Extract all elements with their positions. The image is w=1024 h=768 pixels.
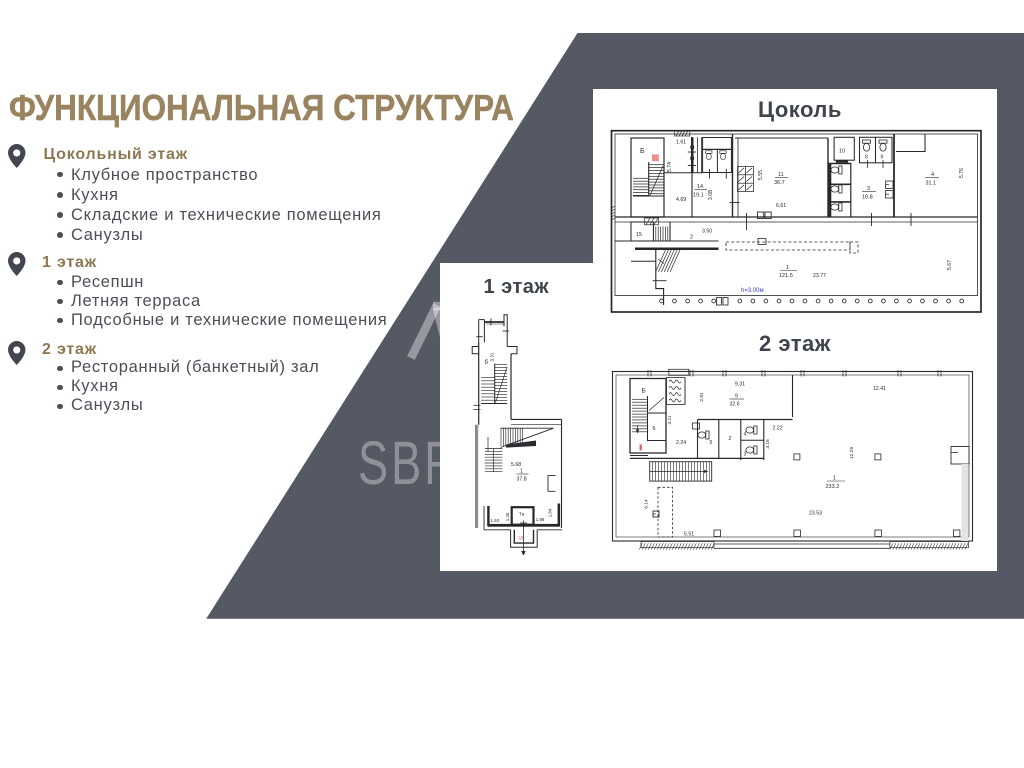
svg-text:1: 1 [786, 265, 789, 271]
svg-text:9: 9 [881, 155, 884, 161]
svg-text:19.1: 19.1 [693, 193, 704, 199]
svg-text:1.36: 1.36 [505, 512, 510, 521]
svg-text:1.84: 1.84 [548, 508, 553, 517]
svg-text:3.50: 3.50 [702, 229, 712, 235]
svg-text:6.14: 6.14 [644, 499, 650, 509]
svg-text:31.1: 31.1 [926, 181, 937, 187]
svg-text:1.93: 1.93 [491, 518, 500, 523]
svg-text:5.55: 5.55 [758, 170, 764, 180]
svg-text:15: 15 [636, 232, 642, 238]
svg-text:2: 2 [729, 436, 732, 442]
svg-text:4.69: 4.69 [676, 197, 686, 203]
svg-text:Та: Та [519, 512, 525, 518]
svg-text:12.29: 12.29 [849, 447, 855, 459]
svg-text:36.7: 36.7 [774, 180, 785, 186]
svg-text:5: 5 [710, 440, 713, 446]
svg-text:5.76: 5.76 [959, 168, 965, 178]
svg-text:3.16: 3.16 [765, 439, 771, 449]
svg-text:3.11: 3.11 [667, 415, 673, 424]
svg-text:1: 1 [520, 469, 523, 475]
svg-text:2.22: 2.22 [773, 426, 783, 432]
svg-text:2.24: 2.24 [676, 440, 686, 446]
svg-text:2.81: 2.81 [699, 392, 705, 402]
svg-text:3: 3 [867, 186, 870, 192]
svg-text:23.77: 23.77 [813, 273, 826, 279]
svg-text:4: 4 [744, 432, 747, 438]
svg-text:5.68: 5.68 [511, 462, 521, 468]
svg-text:3.08: 3.08 [708, 190, 714, 200]
svg-text:8: 8 [865, 155, 868, 161]
svg-text:37.8: 37.8 [517, 477, 527, 483]
svg-text:3: 3 [744, 452, 747, 458]
svg-text:9: 9 [735, 394, 738, 400]
svg-text:5.51: 5.51 [684, 532, 694, 538]
svg-text:10.8: 10.8 [862, 195, 873, 201]
svg-text:2: 2 [690, 235, 693, 241]
svg-text:6.61: 6.61 [776, 203, 786, 209]
svg-text:3.31: 3.31 [490, 352, 495, 361]
svg-text:4: 4 [931, 172, 934, 178]
svg-text:14: 14 [697, 184, 703, 190]
svg-text:Б: Б [642, 388, 646, 395]
svg-text:121.5: 121.5 [779, 273, 793, 279]
svg-text:10: 10 [839, 149, 845, 155]
svg-text:Б: Б [640, 148, 645, 155]
svg-text:32.6: 32.6 [730, 402, 740, 408]
svg-text:5.67: 5.67 [947, 260, 953, 270]
svg-text:11: 11 [778, 172, 784, 178]
svg-text:1.61: 1.61 [676, 140, 686, 146]
svg-text:б: б [485, 360, 489, 366]
svg-text:5.74: 5.74 [667, 162, 673, 172]
svg-text:233.2: 233.2 [826, 484, 840, 490]
svg-text:6: 6 [653, 426, 656, 432]
svg-text:h=3.00м: h=3.00м [741, 288, 764, 294]
svg-text:23.53: 23.53 [809, 511, 822, 517]
svg-text:9.31: 9.31 [735, 382, 745, 388]
svg-text:1: 1 [833, 476, 836, 482]
svg-text:1.98: 1.98 [536, 517, 545, 522]
svg-text:12.41: 12.41 [873, 386, 886, 392]
